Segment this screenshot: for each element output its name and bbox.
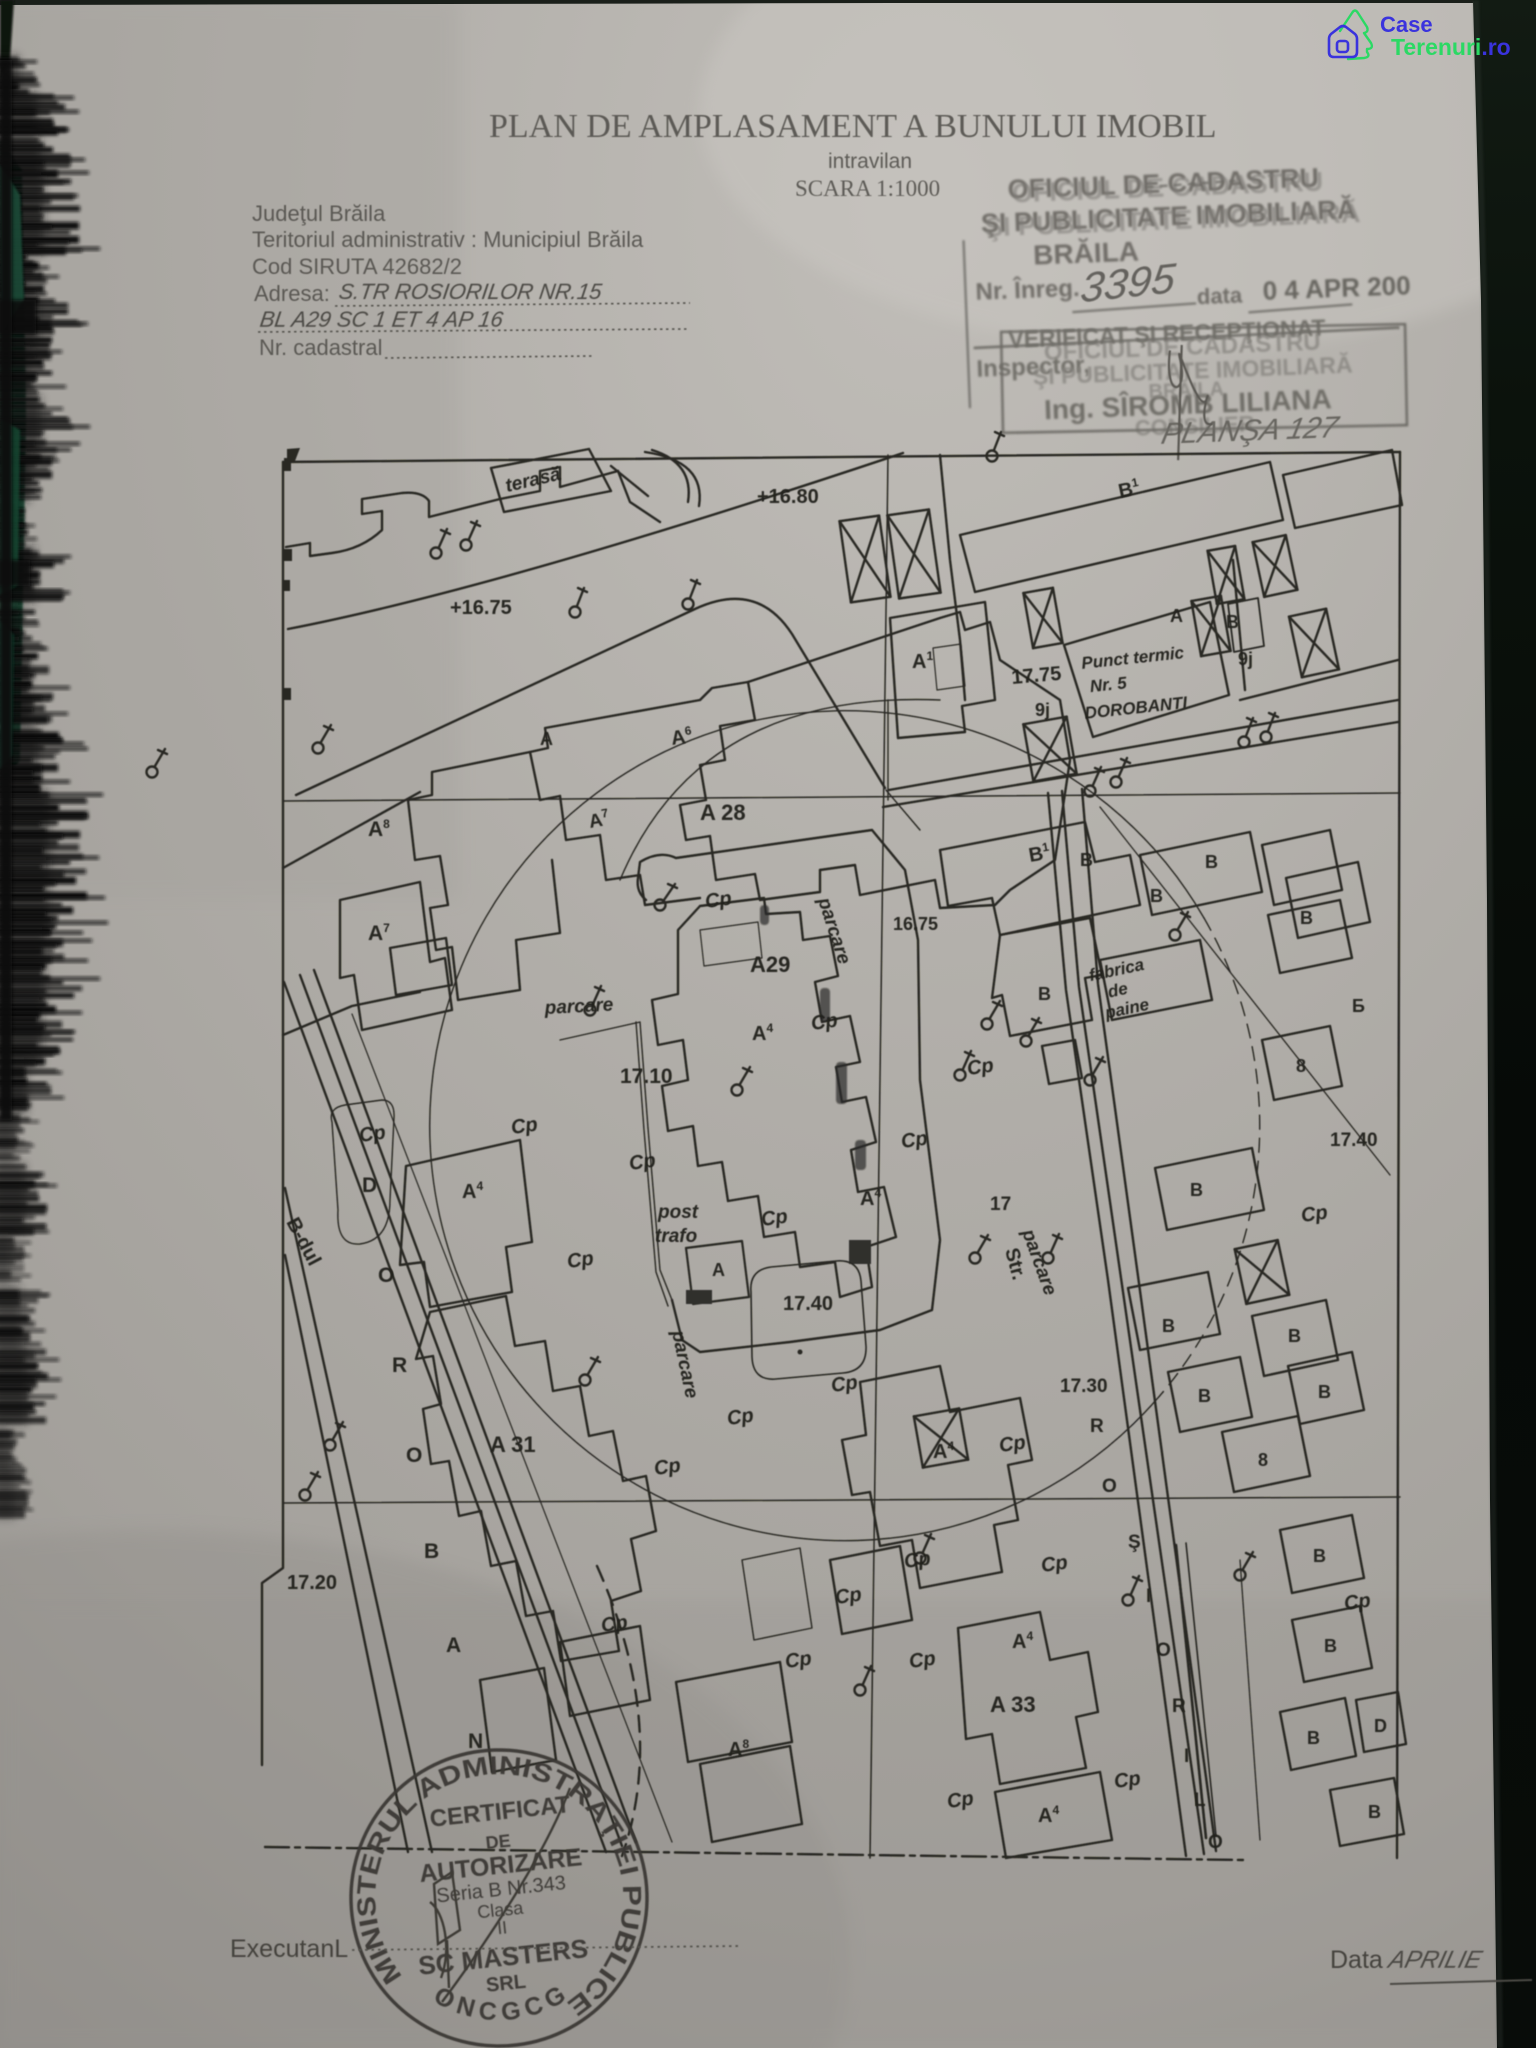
svg-text:B: B bbox=[1226, 612, 1239, 632]
svg-text:R: R bbox=[392, 1354, 407, 1377]
svg-text:B: B bbox=[1318, 1382, 1331, 1402]
svg-text:R: R bbox=[1090, 1416, 1104, 1437]
svg-text:Cp: Cp bbox=[600, 1611, 629, 1636]
svg-text:Teritoriul administrativ : Mun: Teritoriul administrativ : Municipiul Br… bbox=[252, 227, 644, 252]
svg-text:Cp: Cp bbox=[966, 1054, 995, 1079]
svg-text:L: L bbox=[1194, 1790, 1206, 1811]
svg-text:Cp: Cp bbox=[726, 1404, 755, 1429]
svg-text:SCARA 1:1000: SCARA 1:1000 bbox=[795, 176, 940, 201]
svg-text:B: B bbox=[1205, 852, 1218, 872]
svg-text:8: 8 bbox=[1258, 1450, 1268, 1470]
svg-text:APRILIE: APRILIE bbox=[1384, 1947, 1485, 1974]
svg-text:Cp: Cp bbox=[946, 1787, 975, 1812]
svg-text:Cp: Cp bbox=[810, 1009, 839, 1034]
svg-text:8: 8 bbox=[1296, 1056, 1306, 1076]
svg-text:17: 17 bbox=[990, 1194, 1011, 1215]
svg-text:Cp: Cp bbox=[358, 1121, 387, 1146]
svg-text:Data: Data bbox=[1330, 1946, 1383, 1974]
svg-text:Cp: Cp bbox=[1343, 1589, 1372, 1614]
svg-text:17.75: 17.75 bbox=[1011, 663, 1063, 689]
svg-text:B: B bbox=[1368, 1802, 1381, 1822]
svg-text:B: B bbox=[424, 1540, 439, 1563]
svg-text:B: B bbox=[1313, 1546, 1326, 1566]
svg-text:DE: DE bbox=[485, 1831, 512, 1854]
svg-text:Cp: Cp bbox=[784, 1647, 813, 1672]
svg-text:B: B bbox=[1324, 1636, 1337, 1656]
svg-text:Cp: Cp bbox=[830, 1371, 859, 1396]
svg-text:I: I bbox=[1184, 1746, 1189, 1767]
svg-text:Nr. 5: Nr. 5 bbox=[1089, 673, 1128, 696]
svg-text:de: de bbox=[1106, 979, 1129, 1002]
svg-text:A: A bbox=[1170, 606, 1183, 626]
svg-text:O: O bbox=[1102, 1476, 1117, 1497]
svg-text:PLAN DE AMPLASAMENT A BUNULUI: PLAN DE AMPLASAMENT A BUNULUI IMOBIL bbox=[489, 108, 1217, 145]
svg-text:+16.75: +16.75 bbox=[450, 597, 512, 619]
svg-text:Cp: Cp bbox=[653, 1454, 682, 1479]
svg-text:17.20: 17.20 bbox=[287, 1572, 337, 1594]
svg-text:B: B bbox=[1198, 1386, 1211, 1406]
svg-text:Cp: Cp bbox=[903, 1547, 932, 1572]
svg-text:Ş: Ş bbox=[1128, 1532, 1141, 1553]
svg-text:A: A bbox=[540, 729, 553, 749]
svg-text:S.TR ROSIORILOR NR.15: S.TR ROSIORILOR NR.15 bbox=[337, 279, 604, 304]
svg-text:ExecutanL: ExecutanL bbox=[230, 1935, 348, 1963]
svg-text:intravilan: intravilan bbox=[828, 150, 912, 173]
svg-text:Cp: Cp bbox=[834, 1583, 863, 1608]
svg-text:Cp: Cp bbox=[1300, 1201, 1329, 1226]
svg-text:O: O bbox=[378, 1264, 394, 1287]
svg-text:9j: 9j bbox=[1035, 700, 1050, 720]
svg-text:SRL: SRL bbox=[485, 1971, 527, 1997]
svg-text:I: I bbox=[1146, 1586, 1151, 1607]
svg-text:post: post bbox=[657, 1202, 699, 1223]
svg-text:17.40: 17.40 bbox=[1330, 1130, 1378, 1151]
svg-text:B: B bbox=[1080, 850, 1093, 870]
svg-text:9j: 9j bbox=[1238, 649, 1253, 669]
svg-text:A 31: A 31 bbox=[490, 1432, 536, 1457]
svg-text:A 33: A 33 bbox=[990, 1692, 1036, 1717]
svg-text:B: B bbox=[1150, 886, 1163, 906]
svg-text:17.10: 17.10 bbox=[620, 1065, 673, 1088]
svg-text:Cp: Cp bbox=[628, 1149, 657, 1174]
svg-text:16.75: 16.75 bbox=[893, 914, 938, 934]
svg-text:D: D bbox=[362, 1174, 377, 1197]
svg-text:O: O bbox=[406, 1444, 422, 1467]
svg-text:0 4 APR 200: 0 4 APR 200 bbox=[1262, 270, 1411, 306]
svg-text:17.40: 17.40 bbox=[783, 1293, 833, 1315]
svg-text:+16.80: +16.80 bbox=[757, 486, 819, 508]
svg-text:Cp: Cp bbox=[704, 887, 733, 912]
svg-text:Adresa:: Adresa: bbox=[254, 281, 330, 306]
svg-text:B: B bbox=[1307, 1728, 1320, 1748]
svg-text:trafo: trafo bbox=[655, 1226, 697, 1247]
svg-text:Nr. cadastral: Nr. cadastral bbox=[259, 335, 383, 360]
svg-text:Cp: Cp bbox=[510, 1113, 539, 1138]
svg-text:BRĂILA: BRĂILA bbox=[1148, 377, 1224, 403]
svg-text:B: B bbox=[1300, 908, 1313, 928]
svg-text:Terenuri.ro: Terenuri.ro bbox=[1391, 34, 1511, 60]
svg-text:Cp: Cp bbox=[908, 1647, 937, 1672]
svg-text:Cp: Cp bbox=[566, 1247, 595, 1272]
svg-text:Cp: Cp bbox=[1113, 1767, 1142, 1792]
svg-text:Б: Б bbox=[1352, 996, 1365, 1016]
svg-text:B: B bbox=[1038, 984, 1051, 1004]
svg-text:17.30: 17.30 bbox=[1060, 1376, 1108, 1397]
svg-text:A: A bbox=[446, 1634, 461, 1657]
svg-text:O: O bbox=[1208, 1832, 1223, 1853]
svg-text:A 28: A 28 bbox=[700, 800, 746, 825]
svg-text:Nr. Înreg.: Nr. Înreg. bbox=[975, 274, 1080, 306]
svg-text:B: B bbox=[1288, 1326, 1301, 1346]
svg-text:B: B bbox=[1162, 1316, 1175, 1336]
svg-text:A: A bbox=[712, 1260, 725, 1280]
svg-text:BL A29 SC 1 ET 4 AP 16: BL A29 SC 1 ET 4 AP 16 bbox=[258, 307, 505, 332]
svg-text:Judeţul Brăila: Judeţul Brăila bbox=[252, 201, 386, 226]
svg-text:Cp: Cp bbox=[760, 1205, 789, 1230]
svg-text:Cp: Cp bbox=[1040, 1551, 1069, 1576]
svg-text:Cp: Cp bbox=[998, 1431, 1027, 1456]
svg-text:O: O bbox=[1156, 1640, 1171, 1661]
svg-text:parcare: parcare bbox=[543, 994, 614, 1019]
svg-text:B: B bbox=[1190, 1180, 1203, 1200]
svg-text:D: D bbox=[1374, 1716, 1387, 1736]
svg-text:A29: A29 bbox=[750, 952, 790, 977]
svg-text:R: R bbox=[1172, 1696, 1186, 1717]
svg-text:Cp: Cp bbox=[900, 1127, 929, 1152]
svg-text:Cod SIRUTA 42682/2: Cod SIRUTA 42682/2 bbox=[252, 254, 462, 279]
svg-text:data: data bbox=[1196, 283, 1243, 310]
